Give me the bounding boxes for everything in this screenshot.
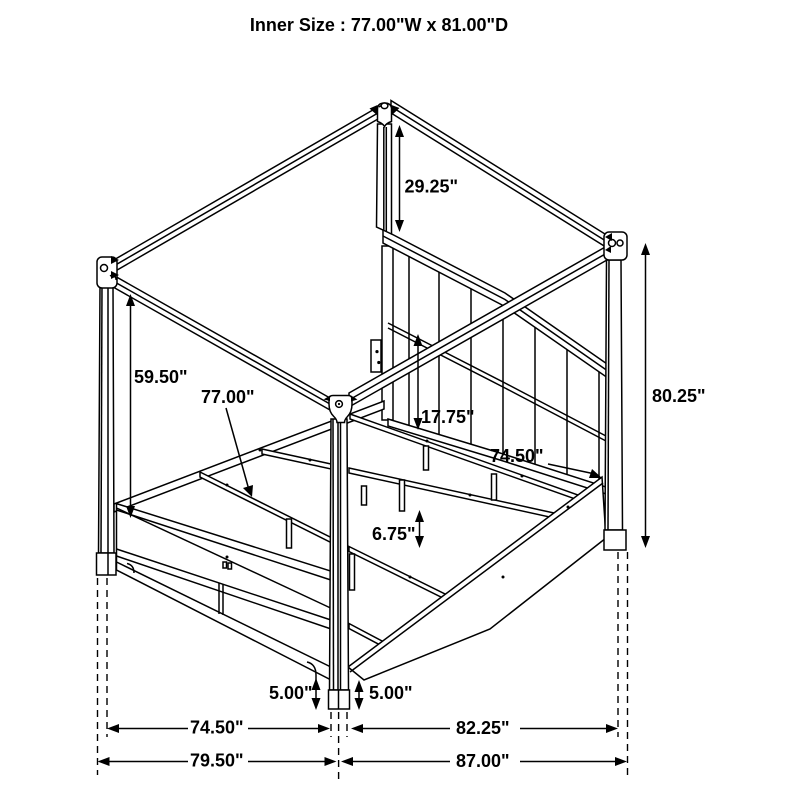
svg-text:82.25": 82.25" [456, 718, 510, 738]
svg-text:17.75": 17.75" [421, 407, 475, 427]
svg-text:74.50": 74.50" [190, 718, 244, 738]
svg-text:79.50": 79.50" [190, 751, 244, 771]
svg-text:74.50": 74.50" [490, 446, 544, 466]
svg-text:Inner Size : 77.00"W x 81.00"D: Inner Size : 77.00"W x 81.00"D [250, 15, 508, 35]
svg-text:77.00": 77.00" [201, 387, 255, 407]
svg-text:87.00": 87.00" [456, 751, 510, 771]
svg-text:29.25": 29.25" [405, 177, 459, 197]
svg-text:80.25": 80.25" [652, 386, 706, 406]
svg-text:5.00": 5.00" [369, 683, 413, 703]
svg-text:5.00": 5.00" [269, 683, 313, 703]
svg-text:6.75": 6.75" [372, 524, 416, 544]
svg-text:59.50": 59.50" [134, 367, 188, 387]
